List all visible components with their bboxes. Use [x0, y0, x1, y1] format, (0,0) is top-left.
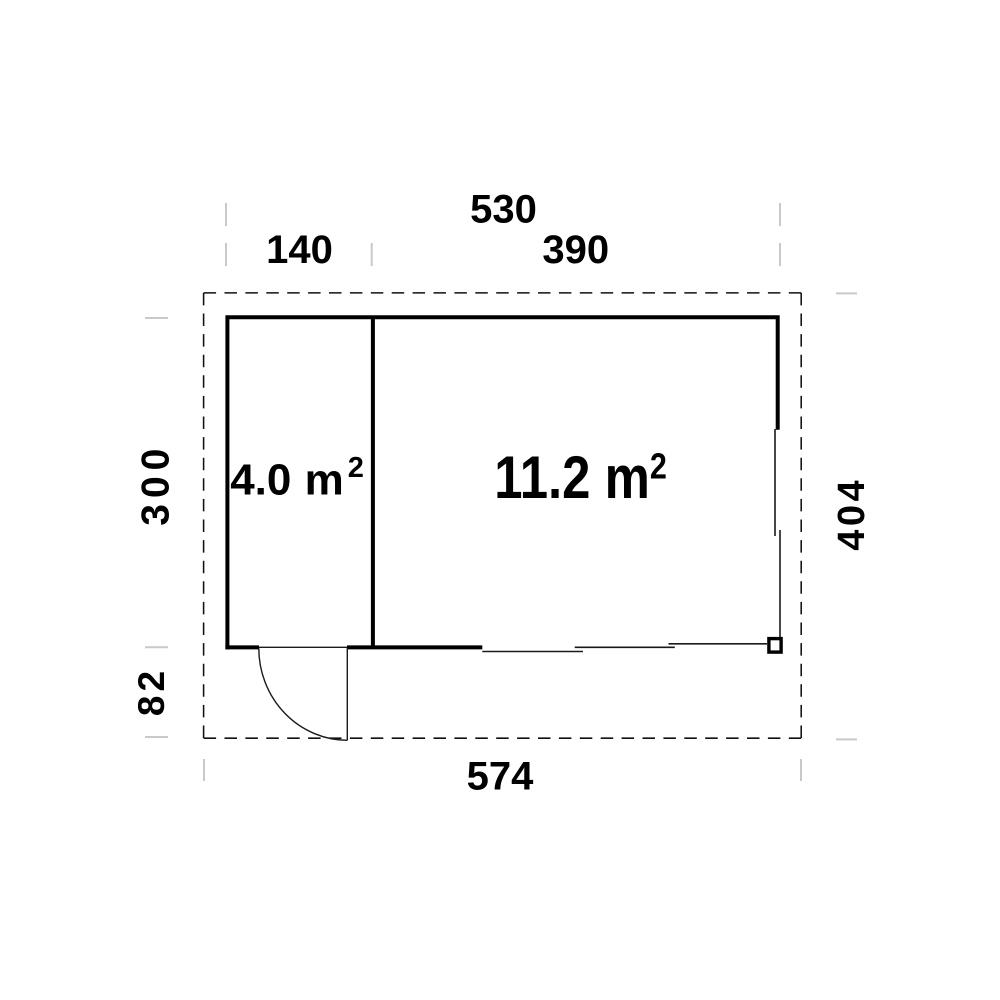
svg-text:82: 82	[131, 667, 172, 716]
svg-text:390: 390	[542, 228, 609, 272]
svg-text:300: 300	[134, 443, 177, 526]
svg-text:530: 530	[470, 187, 537, 231]
svg-text:404: 404	[831, 477, 873, 551]
svg-text:140: 140	[266, 228, 333, 272]
svg-text:11.2 m2: 11.2 m2	[494, 444, 666, 511]
svg-text:574: 574	[467, 755, 534, 799]
